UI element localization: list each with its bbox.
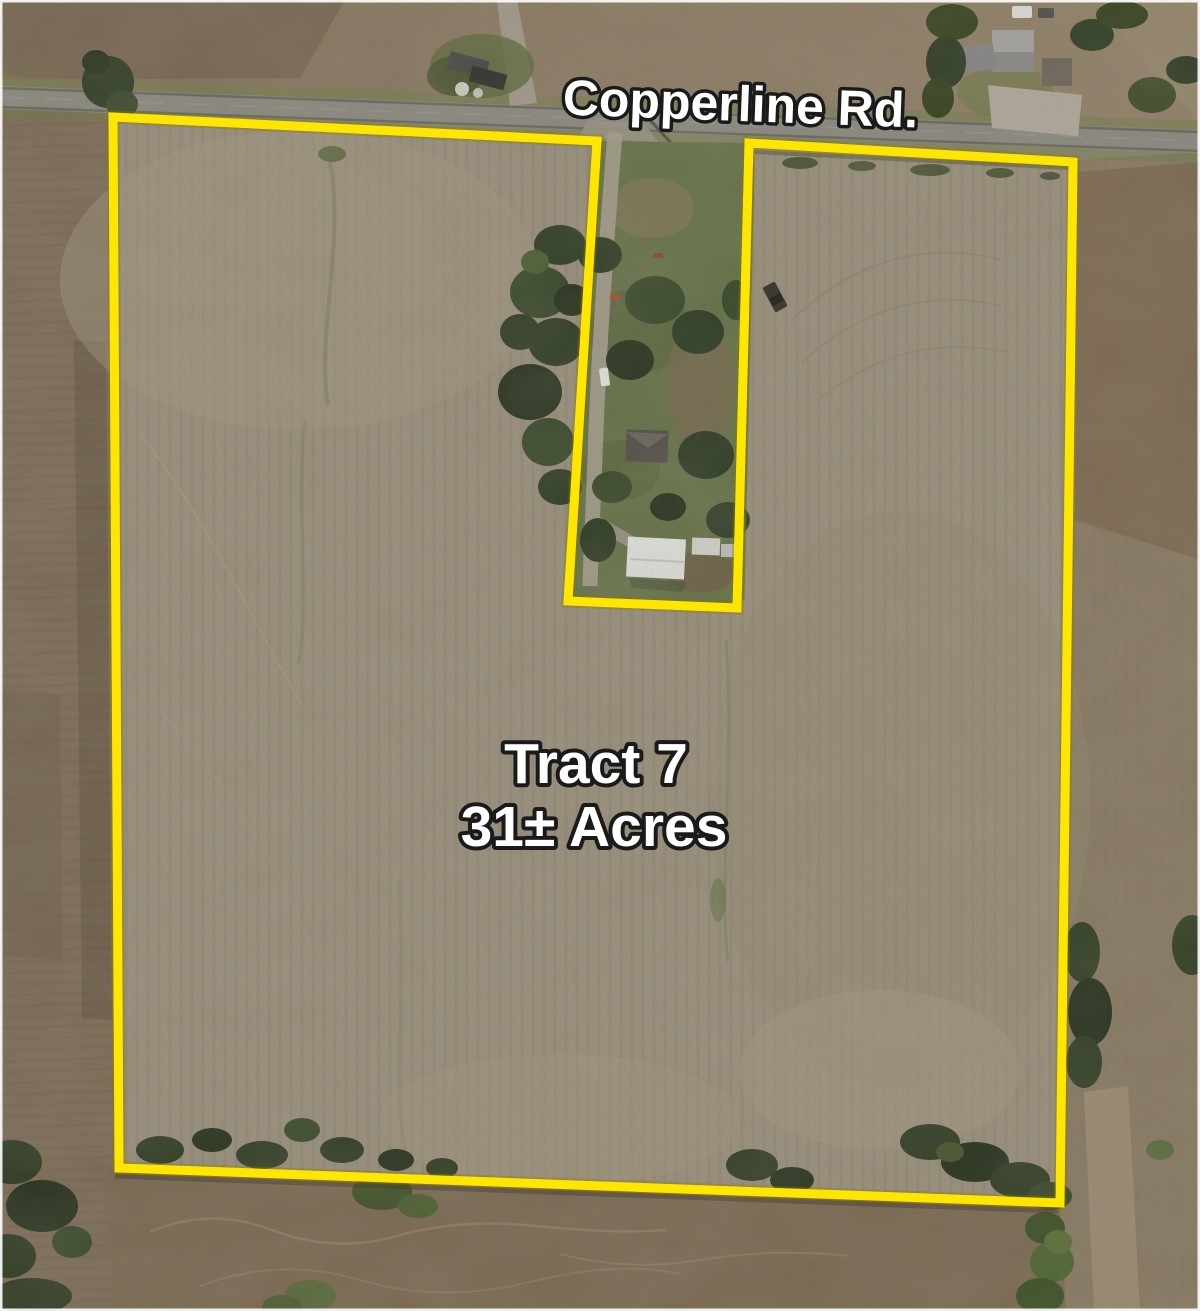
tract-name-label: Tract 7	[504, 732, 688, 796]
aerial-tract-map: Copperline Rd. Tract 7 31± Acres	[0, 0, 1200, 1311]
tract-acreage-label: 31± Acres	[461, 795, 728, 859]
aerial-map-canvas: Copperline Rd. Tract 7 31± Acres	[0, 0, 1200, 1311]
